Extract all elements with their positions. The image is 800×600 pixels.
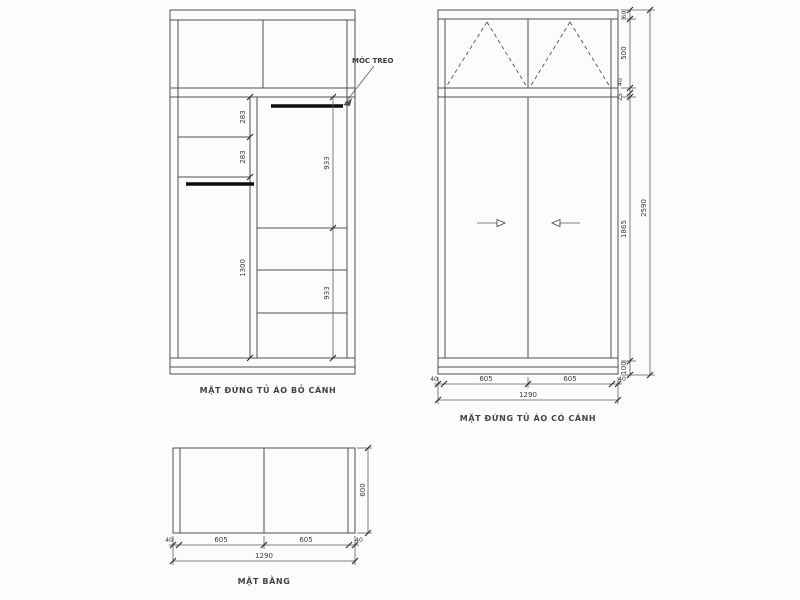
left-column-dim-chain: 283 283 1300 (239, 94, 253, 361)
dim-label-lower-shelf: 283 (239, 150, 247, 163)
dim-label-upper-shelf: 283 (239, 110, 247, 123)
dim-label-total-width: 1290 (519, 391, 537, 399)
dim-label-right-bottom-section: 933 (323, 286, 331, 299)
plan-view-caption: MẶT BẰNG (238, 574, 291, 586)
total-height-dim: 2590 (640, 7, 653, 378)
dim-label-bottom-2: 605 (563, 375, 576, 383)
left-cabinet-partitions (178, 97, 347, 358)
dim-label-door-height: 1865 (620, 220, 628, 238)
plan-view: 600 40 605 605 40 1290 MẶT BẰNG (165, 445, 372, 586)
dim-label-right-top-section: 933 (323, 156, 331, 169)
dim-label-bottom-3: 40 (618, 376, 626, 383)
right-view-width-dims: 40 605 605 40 1290 (430, 375, 626, 404)
plan-width-dims: 40 605 605 40 1290 (165, 536, 363, 565)
right-view-caption: MẶT ĐỨNG TỦ ÁO CÓ CÁNH (460, 411, 596, 423)
dim-label-left-section: 1300 (239, 259, 247, 277)
right-elevation-view: 60 500 40 25 1865 100 2590 40 605 (430, 7, 655, 423)
door-open-arrow-right-icon (552, 220, 580, 227)
dim-label-plan-bottom-3: 40 (355, 537, 363, 544)
dim-label-total-height: 2590 (640, 199, 648, 217)
dim-label-top-rail: 60 (621, 11, 628, 19)
left-view-caption: MẶT ĐỨNG TỦ ÁO BỎ CÁNH (200, 383, 337, 395)
dim-label-depth: 600 (359, 483, 367, 496)
left-cabinet-outline (170, 10, 355, 374)
dim-label-base-height: 100 (620, 361, 628, 374)
hanger-label: MÓC TREO (352, 56, 393, 65)
height-dim-chain: 60 500 40 25 1865 100 (617, 7, 633, 378)
dim-label-plan-bottom-1: 605 (214, 536, 227, 544)
dim-label-bottom-0: 40 (430, 376, 438, 383)
plan-depth-dim: 600 (357, 445, 372, 536)
dim-label-top-cabinet: 500 (620, 46, 628, 59)
wardrobe-drawing: 283 283 1300 933 933 MÓC TREO MẶT ĐỨNG T… (0, 0, 800, 600)
dim-label-plan-total-width: 1290 (255, 552, 273, 560)
door-open-arrow-left-icon (477, 220, 505, 227)
dim-label-shelf-thickness: 40 (617, 78, 624, 86)
left-elevation-view: 283 283 1300 933 933 MÓC TREO MẶT ĐỨNG T… (170, 10, 393, 395)
dim-label-plan-bottom-0: 40 (165, 537, 173, 544)
dim-label-bottom-1: 605 (479, 375, 492, 383)
leader-line (345, 66, 374, 103)
technical-drawing-canvas: 283 283 1300 933 933 MÓC TREO MẶT ĐỨNG T… (0, 0, 800, 600)
dim-label-gap: 25 (617, 93, 624, 101)
hanger-callout: MÓC TREO (343, 56, 393, 106)
plan-outline (173, 448, 355, 533)
right-cabinet-outline (438, 10, 618, 374)
dim-label-plan-bottom-2: 605 (299, 536, 312, 544)
